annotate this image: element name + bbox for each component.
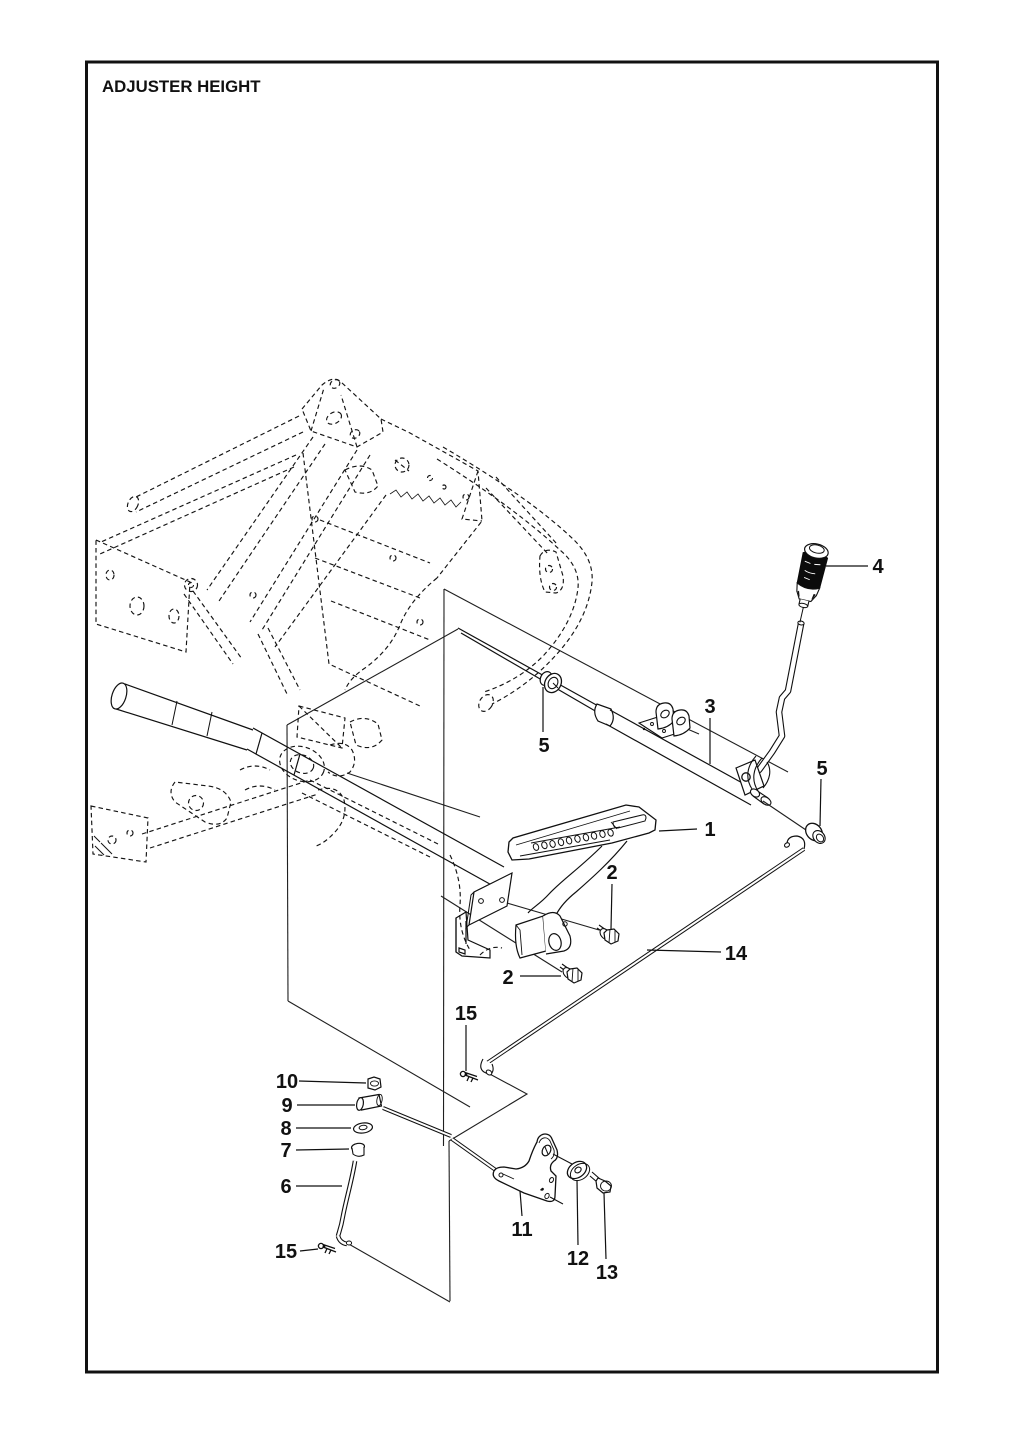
- svg-text:13: 13: [596, 1262, 618, 1284]
- svg-text:ADJUSTER HEIGHT: ADJUSTER HEIGHT: [102, 77, 261, 96]
- svg-text:3: 3: [704, 696, 715, 718]
- svg-text:6: 6: [280, 1176, 291, 1198]
- svg-text:14: 14: [725, 943, 748, 965]
- svg-text:4: 4: [872, 556, 884, 578]
- svg-text:15: 15: [275, 1241, 297, 1263]
- svg-text:10: 10: [276, 1071, 298, 1093]
- svg-text:5: 5: [538, 735, 549, 757]
- svg-text:11: 11: [511, 1219, 532, 1241]
- svg-text:9: 9: [281, 1095, 292, 1117]
- svg-text:12: 12: [567, 1248, 589, 1270]
- svg-text:8: 8: [280, 1118, 291, 1140]
- svg-text:15: 15: [455, 1003, 477, 1025]
- svg-text:2: 2: [606, 862, 617, 884]
- svg-text:2: 2: [502, 967, 513, 989]
- svg-text:7: 7: [280, 1140, 291, 1162]
- svg-text:1: 1: [704, 819, 715, 841]
- svg-text:5: 5: [816, 758, 827, 780]
